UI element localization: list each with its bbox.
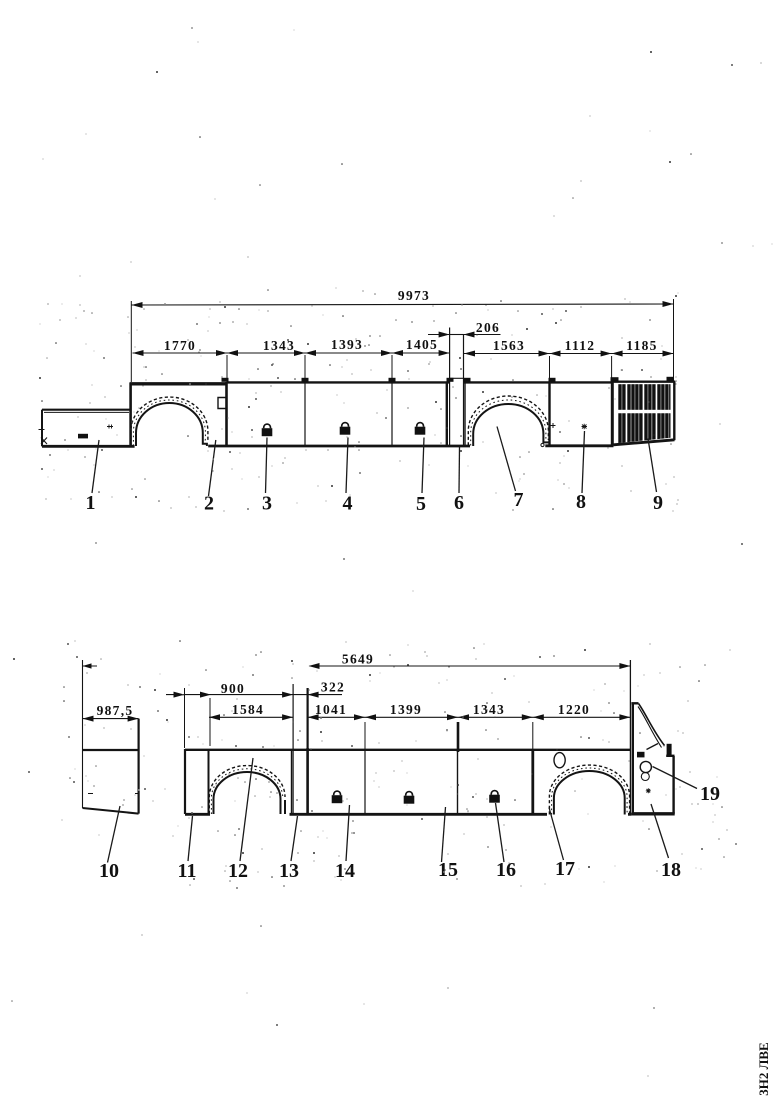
svg-text:18: 18: [661, 859, 681, 881]
svg-text:1405: 1405: [406, 337, 438, 352]
svg-text:1563: 1563: [493, 338, 525, 353]
svg-text:19: 19: [700, 783, 720, 805]
svg-text:1220: 1220: [558, 702, 590, 717]
svg-text:7: 7: [514, 489, 524, 511]
svg-text:1393: 1393: [331, 337, 363, 352]
svg-text:2: 2: [204, 493, 214, 515]
svg-text:5649: 5649: [342, 652, 374, 667]
svg-text:1343: 1343: [263, 338, 295, 353]
svg-text:4: 4: [343, 493, 353, 515]
svg-text:987,5: 987,5: [97, 703, 134, 718]
svg-text:1041: 1041: [315, 702, 347, 717]
svg-text:16: 16: [496, 859, 516, 881]
svg-text:1185: 1185: [626, 338, 657, 353]
svg-text:900: 900: [221, 681, 245, 696]
svg-text:10: 10: [99, 860, 119, 882]
svg-text:6: 6: [454, 492, 464, 514]
svg-text:12: 12: [228, 860, 248, 882]
svg-text:322: 322: [321, 680, 345, 695]
svg-text:1399: 1399: [390, 702, 422, 717]
svg-text:9973: 9973: [398, 288, 430, 303]
svg-text:14: 14: [335, 860, 355, 882]
svg-text:9: 9: [653, 492, 663, 514]
svg-text:15: 15: [438, 859, 458, 881]
svg-text:8: 8: [576, 491, 586, 513]
svg-text:3: 3: [262, 493, 272, 515]
svg-text:3Н2 ЛВЕ: 3Н2 ЛВЕ: [756, 1042, 771, 1095]
svg-text:17: 17: [555, 858, 575, 880]
svg-text:5: 5: [416, 493, 426, 515]
svg-text:1: 1: [86, 492, 96, 514]
svg-text:1584: 1584: [232, 702, 264, 717]
svg-text:1112: 1112: [565, 338, 596, 353]
svg-text:206: 206: [476, 320, 500, 335]
svg-text:1770: 1770: [164, 338, 196, 353]
svg-text:1343: 1343: [473, 702, 505, 717]
svg-text:13: 13: [279, 860, 299, 882]
